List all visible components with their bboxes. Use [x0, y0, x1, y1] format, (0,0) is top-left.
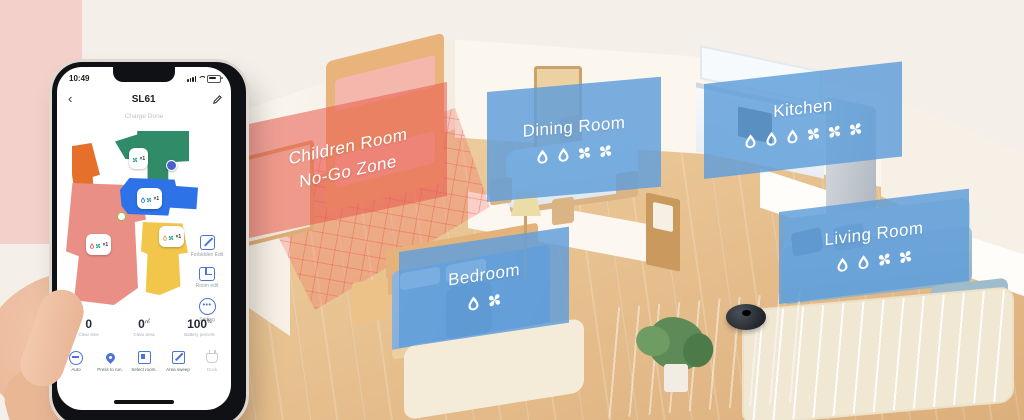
- smartphone: 10:49 ‹ SL61 Charge Done: [52, 62, 246, 420]
- interior-door: [646, 192, 680, 271]
- nightstand: [352, 277, 388, 325]
- toolbar-label: Auto: [71, 367, 80, 372]
- room-label-pill: ×1: [129, 148, 148, 169]
- map-marker: [117, 212, 126, 221]
- water-fan-icons: [532, 143, 616, 165]
- button-label: Room edit: [196, 283, 219, 289]
- app-screen: 10:49 ‹ SL61 Charge Done: [57, 67, 231, 410]
- nav-bar: ‹ SL61: [65, 91, 223, 107]
- button-label: Forbidden Edit: [191, 252, 224, 258]
- stats-row: 0 Clear time 0㎡ Clear area 100% Battery …: [61, 317, 227, 337]
- zone-label: Kitchen: [773, 95, 833, 122]
- stat-battery: 100% Battery percent: [172, 317, 227, 337]
- zone-label: Bedroom: [448, 260, 520, 291]
- toolbar-label: Select room.: [131, 367, 156, 372]
- area-sweep-button[interactable]: Area sweep: [161, 351, 195, 372]
- fan-icon: [806, 125, 821, 142]
- fan-icon: [95, 243, 101, 249]
- fan-icon: [168, 235, 174, 241]
- select-room-icon: [138, 351, 151, 364]
- robot-vacuum: [726, 304, 766, 330]
- wifi-icon: [198, 76, 205, 81]
- pill-count: ×1: [176, 234, 182, 240]
- zone-label: Dining Room: [523, 113, 626, 142]
- edit-map-icon[interactable]: [212, 94, 223, 105]
- pill-icons: [89, 236, 101, 254]
- pill-icons: [140, 190, 152, 208]
- water-drop-icon: [556, 147, 571, 163]
- robot-icon: [69, 351, 83, 365]
- signal-icon: [187, 76, 196, 82]
- water-drop-icon: [785, 128, 800, 145]
- water-fan-icons: [740, 120, 866, 149]
- forbidden-edit-icon: [200, 235, 215, 250]
- fan-icon: [877, 251, 892, 268]
- charge-status-text: Charge Done: [57, 113, 231, 120]
- pin-icon: [104, 351, 117, 364]
- marketing-banner: Children Room No-Go Zone Dining Room Kit…: [0, 0, 1024, 420]
- bottom-toolbar: Auto Press to run. Select room. Area swe…: [59, 351, 229, 372]
- fan-icon: [132, 157, 138, 163]
- status-time: 10:49: [69, 74, 89, 83]
- pill-count: ×1: [140, 156, 146, 162]
- water-drop-icon: [743, 132, 758, 149]
- fan-icon: [827, 123, 842, 140]
- phone-notch: [113, 67, 175, 82]
- fan-icon: [898, 249, 913, 266]
- press-to-run-button[interactable]: Press to run.: [93, 351, 127, 372]
- water-fan-icons: [463, 291, 505, 312]
- toolbar-label: Area sweep: [166, 367, 190, 372]
- select-room-button[interactable]: Select room.: [127, 351, 161, 372]
- page-title: SL61: [132, 94, 156, 105]
- potted-plant-pot: [664, 364, 688, 392]
- toolbar-label: Press to run.: [97, 367, 123, 372]
- charging-dock-marker: [166, 160, 177, 171]
- stat-clear-area: 0㎡ Clear area: [116, 317, 171, 337]
- pill-count: ×1: [103, 242, 109, 248]
- fan-icon: [598, 143, 613, 159]
- zone-dining-room: Dining Room: [487, 77, 661, 202]
- fan-icon: [487, 292, 502, 309]
- back-button[interactable]: ‹: [65, 93, 75, 105]
- water-drop-icon: [535, 148, 550, 164]
- water-fan-icons: [832, 248, 916, 273]
- toolbar-label: Dock: [207, 367, 217, 372]
- water-drop-icon: [835, 256, 850, 273]
- water-drop-icon: [764, 130, 779, 147]
- setting-icon: •••: [199, 298, 216, 315]
- room-label-pill: ×1: [137, 188, 162, 209]
- dining-chair: [552, 196, 574, 225]
- map-tools: Forbidden Edit Room edit ••• Setting: [185, 235, 229, 323]
- room-label-pill: ×1: [159, 226, 184, 247]
- water-drop-icon: [466, 295, 481, 312]
- dock-button[interactable]: Dock: [195, 351, 229, 372]
- pill-icons: [132, 150, 138, 168]
- fan-icon: [577, 145, 592, 161]
- water-drop-icon: [856, 254, 871, 271]
- battery-icon: [207, 75, 221, 83]
- room-edit-button[interactable]: Room edit: [196, 267, 219, 289]
- home-indicator[interactable]: [114, 400, 174, 404]
- fan-icon: [146, 197, 152, 203]
- fan-icon: [848, 120, 863, 137]
- zone-label: Living Room: [825, 218, 924, 250]
- dock-icon: [206, 353, 218, 363]
- forbidden-edit-button[interactable]: Forbidden Edit: [191, 235, 224, 258]
- room-edit-icon: [199, 267, 215, 281]
- area-sweep-icon: [172, 351, 185, 364]
- pill-count: ×1: [154, 196, 160, 202]
- pill-icons: [162, 228, 174, 246]
- room-label-pill: ×1: [86, 234, 111, 255]
